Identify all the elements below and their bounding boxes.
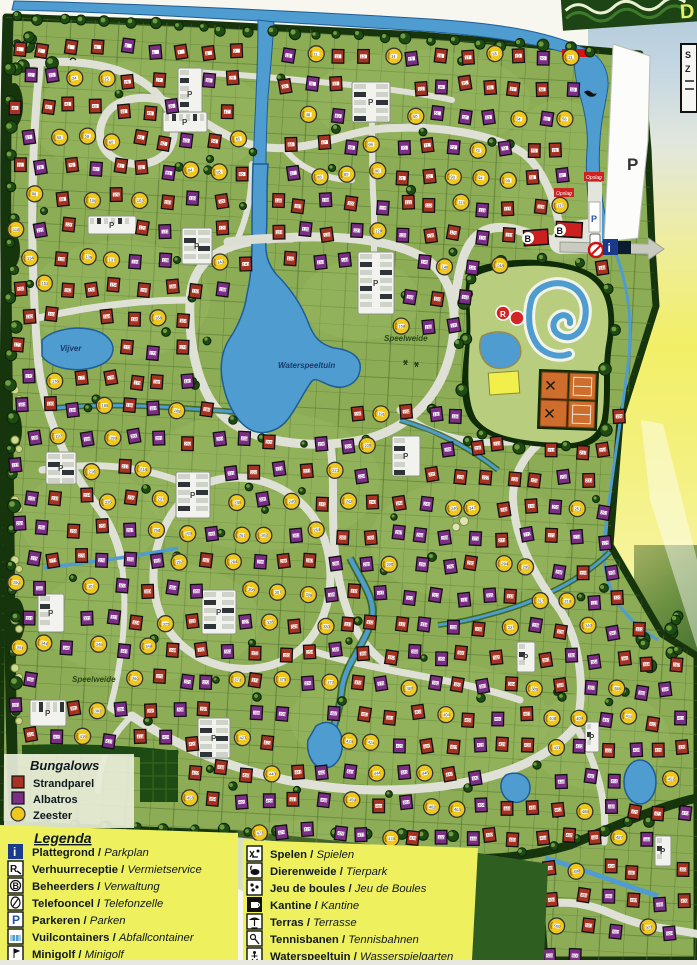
- svg-text:404: 404: [443, 712, 451, 717]
- svg-text:442: 442: [318, 770, 326, 776]
- svg-text:171: 171: [14, 342, 22, 348]
- svg-text:453: 453: [187, 795, 195, 800]
- svg-text:Albatros: Albatros: [33, 794, 78, 806]
- svg-text:R: R: [10, 864, 18, 875]
- svg-text:477: 477: [358, 832, 366, 837]
- svg-text:106: 106: [276, 198, 284, 203]
- svg-text:112: 112: [426, 203, 433, 208]
- svg-text:Parkeren / Parken: Parkeren / Parken: [32, 915, 126, 927]
- svg-text:456: 456: [266, 798, 273, 803]
- svg-text:504: 504: [666, 931, 674, 937]
- svg-text:205: 205: [266, 439, 274, 444]
- svg-text:451: 451: [611, 779, 619, 784]
- svg-text:235: 235: [105, 499, 113, 505]
- svg-text:95: 95: [506, 178, 511, 183]
- svg-text:122: 122: [162, 229, 170, 234]
- svg-text:461: 461: [403, 799, 411, 805]
- svg-text:Vijver: Vijver: [60, 344, 82, 353]
- svg-text:206: 206: [318, 441, 326, 447]
- svg-text:234: 234: [84, 492, 92, 497]
- svg-text:416: 416: [80, 734, 88, 740]
- svg-text:279: 279: [99, 558, 107, 563]
- svg-text:427: 427: [450, 744, 458, 750]
- svg-text:231: 231: [586, 478, 594, 483]
- svg-text:405: 405: [465, 718, 473, 723]
- svg-text:285: 285: [257, 559, 265, 565]
- svg-text:466: 466: [529, 805, 537, 810]
- svg-text:103: 103: [165, 200, 173, 206]
- svg-text:349: 349: [169, 647, 177, 653]
- svg-text:320: 320: [614, 595, 622, 600]
- svg-text:376: 376: [305, 680, 313, 686]
- svg-text:144: 144: [342, 257, 350, 263]
- svg-text:290: 290: [386, 562, 394, 567]
- svg-text:167: 167: [180, 318, 188, 324]
- svg-text:197: 197: [55, 433, 63, 439]
- svg-text:384: 384: [508, 681, 516, 686]
- svg-text:151: 151: [41, 281, 49, 287]
- svg-text:177: 177: [78, 375, 86, 381]
- svg-text:237: 237: [157, 496, 165, 501]
- svg-text:406: 406: [495, 717, 503, 722]
- svg-text:242: 242: [346, 499, 354, 505]
- svg-text:370: 370: [156, 674, 164, 679]
- svg-text:Minigolf / Minigolf: Minigolf / Minigolf: [32, 949, 126, 960]
- svg-text:Verhuurreceptie / Vermietservi: Verhuurreceptie / Vermietservice: [32, 864, 202, 876]
- svg-text:190: 190: [355, 411, 363, 417]
- svg-text:373: 373: [234, 677, 242, 683]
- svg-text:253: 253: [17, 521, 25, 526]
- svg-text:305: 305: [193, 589, 201, 594]
- svg-text:174: 174: [180, 345, 188, 350]
- svg-text:502: 502: [612, 929, 620, 935]
- svg-text:439: 439: [243, 773, 251, 779]
- svg-text:400: 400: [331, 711, 339, 717]
- svg-text:118: 118: [13, 227, 20, 232]
- svg-text:302: 302: [119, 583, 127, 589]
- svg-text:B: B: [557, 226, 564, 236]
- svg-text:340: 340: [585, 623, 593, 629]
- svg-text:Opslag: Opslag: [556, 191, 572, 197]
- svg-text:435: 435: [655, 748, 663, 753]
- svg-text:P: P: [58, 464, 64, 473]
- svg-text:P: P: [627, 155, 638, 174]
- svg-text:463: 463: [454, 807, 462, 813]
- svg-text:433: 433: [605, 748, 613, 753]
- svg-text:319: 319: [591, 600, 599, 606]
- svg-text:213: 213: [580, 450, 588, 456]
- svg-text:484: 484: [540, 835, 548, 841]
- svg-text:399: 399: [279, 711, 287, 717]
- svg-text:337: 337: [507, 624, 515, 630]
- svg-text:Strandparel: Strandparel: [33, 778, 94, 790]
- svg-text:274: 274: [574, 534, 582, 540]
- svg-text:425: 425: [396, 743, 404, 748]
- svg-text:329: 329: [291, 624, 299, 630]
- svg-text:485: 485: [566, 832, 574, 838]
- svg-text:348: 348: [145, 643, 153, 649]
- svg-text:Waterspeeltuin / Wasserspielga: Waterspeeltuin / Wasserspielgarten: [270, 951, 453, 960]
- svg-text:408: 408: [549, 716, 557, 721]
- svg-text:152: 152: [65, 288, 73, 294]
- svg-text:366: 366: [643, 662, 651, 667]
- svg-text:353: 353: [283, 653, 291, 658]
- svg-text:B: B: [13, 881, 20, 891]
- svg-text:266: 266: [368, 535, 376, 541]
- svg-text:P: P: [660, 847, 666, 856]
- svg-text:407: 407: [524, 711, 532, 716]
- svg-text:480: 480: [438, 835, 445, 840]
- svg-text:140: 140: [217, 259, 225, 265]
- svg-text:483: 483: [509, 837, 517, 842]
- svg-text:254: 254: [39, 525, 47, 531]
- svg-text:330: 330: [323, 624, 331, 630]
- svg-text:Terras / Terrasse: Terras / Terrasse: [270, 917, 357, 929]
- svg-text:280: 280: [127, 557, 135, 562]
- svg-text:345: 345: [63, 645, 71, 650]
- svg-text:356: 356: [360, 651, 368, 657]
- svg-text:P: P: [368, 98, 374, 107]
- svg-text:181: 181: [184, 378, 192, 384]
- svg-text:150: 150: [18, 286, 26, 292]
- svg-text:307: 307: [275, 589, 283, 595]
- svg-text:P: P: [109, 221, 115, 230]
- svg-text:321: 321: [26, 616, 34, 621]
- svg-text:13: 13: [361, 54, 366, 59]
- svg-text:452: 452: [668, 776, 676, 781]
- svg-text:397: 397: [200, 706, 208, 711]
- svg-text:257: 257: [127, 528, 135, 533]
- svg-text:354: 354: [306, 649, 314, 654]
- svg-text:316: 316: [507, 594, 515, 599]
- svg-text:i: i: [608, 241, 611, 255]
- svg-text:488: 488: [644, 837, 651, 842]
- svg-text:342: 342: [636, 627, 644, 632]
- svg-text:P: P: [589, 733, 595, 742]
- svg-text:460: 460: [376, 804, 383, 809]
- svg-text:129: 129: [400, 233, 408, 238]
- svg-text:227: 227: [482, 475, 490, 481]
- svg-text:318: 318: [564, 599, 571, 604]
- svg-text:162: 162: [26, 314, 34, 320]
- svg-text:347: 347: [121, 648, 129, 654]
- svg-text:491: 491: [608, 863, 616, 868]
- svg-text:P: P: [373, 279, 379, 288]
- svg-text:387: 387: [588, 685, 596, 691]
- svg-text:P: P: [194, 242, 200, 251]
- svg-text:i: i: [13, 845, 16, 859]
- svg-text:156: 156: [170, 284, 178, 290]
- svg-text:176: 176: [52, 379, 60, 384]
- svg-text:441: 441: [295, 769, 303, 775]
- svg-text:436: 436: [679, 744, 687, 750]
- svg-text:493: 493: [680, 867, 688, 872]
- svg-text:352: 352: [252, 651, 260, 656]
- svg-text:310: 310: [351, 588, 359, 594]
- svg-text:165: 165: [131, 317, 139, 322]
- svg-text:Opslag: Opslag: [586, 175, 602, 181]
- svg-text:398: 398: [253, 710, 261, 715]
- svg-text:413: 413: [678, 716, 686, 721]
- svg-text:141: 141: [243, 261, 251, 266]
- svg-text:183: 183: [47, 401, 55, 406]
- svg-text:250: 250: [552, 504, 560, 510]
- svg-text:114: 114: [479, 208, 486, 213]
- svg-text:110: 110: [380, 205, 387, 210]
- svg-text:Speelweide: Speelweide: [384, 334, 428, 343]
- svg-text:297: 297: [580, 570, 587, 575]
- svg-text:275: 275: [602, 540, 610, 546]
- svg-text:365: 365: [622, 655, 630, 661]
- svg-text:P: P: [216, 608, 222, 617]
- svg-text:294: 294: [501, 561, 509, 566]
- svg-text:249: 249: [528, 503, 536, 509]
- svg-text:359: 359: [439, 656, 447, 661]
- svg-text:146: 146: [442, 264, 450, 269]
- svg-text:505: 505: [546, 953, 554, 958]
- svg-text:311: 311: [377, 590, 384, 595]
- svg-text:204: 204: [241, 436, 249, 441]
- svg-text:428: 428: [477, 742, 485, 747]
- svg-text:Tennisbanen / Tennisbahnen: Tennisbanen / Tennisbahnen: [270, 934, 419, 946]
- svg-text:175: 175: [26, 373, 34, 378]
- svg-text:494: 494: [548, 897, 556, 903]
- svg-text:270: 270: [472, 536, 480, 541]
- svg-text:Beheerders / Verwaltung: Beheerders / Verwaltung: [32, 881, 160, 893]
- svg-text:315: 315: [487, 593, 495, 599]
- svg-text:217: 217: [122, 464, 130, 469]
- svg-text:455: 455: [239, 799, 247, 805]
- svg-text:468: 468: [582, 809, 590, 814]
- svg-text:Speelweide: Speelweide: [72, 675, 116, 684]
- svg-text:P: P: [211, 734, 217, 743]
- svg-text:325: 325: [163, 621, 170, 626]
- svg-text:108: 108: [322, 197, 330, 202]
- svg-text:P: P: [182, 118, 188, 127]
- svg-text:222: 222: [304, 468, 312, 474]
- svg-text:391: 391: [12, 702, 20, 707]
- svg-text:496: 496: [606, 894, 614, 899]
- svg-text:139: 139: [162, 258, 170, 263]
- svg-text:P: P: [403, 452, 409, 461]
- svg-text:478: 478: [388, 836, 395, 841]
- svg-text:481: 481: [470, 836, 477, 841]
- svg-text:Telefooncel / Telefonzelle: Telefooncel / Telefonzelle: [32, 898, 163, 910]
- svg-text:138: 138: [132, 259, 140, 265]
- svg-text:454: 454: [209, 796, 217, 802]
- svg-text:471: 471: [655, 811, 663, 817]
- svg-text:361: 361: [493, 655, 501, 661]
- svg-text:192: 192: [403, 409, 411, 415]
- svg-text:185: 185: [101, 403, 109, 409]
- svg-text:Dierenweide / Tierpark: Dierenweide / Tierpark: [270, 866, 389, 878]
- svg-text:437: 437: [192, 770, 200, 776]
- svg-text:P: P: [48, 609, 54, 618]
- svg-text:Spelen / Spielen: Spelen / Spielen: [270, 849, 354, 861]
- svg-text:Z: Z: [685, 64, 691, 74]
- svg-text:430: 430: [525, 743, 533, 748]
- svg-text:492: 492: [628, 870, 636, 875]
- svg-text:P: P: [12, 913, 20, 927]
- svg-text:Plattegrond / Parkplan: Plattegrond / Parkplan: [32, 847, 149, 859]
- svg-text:86: 86: [239, 172, 244, 177]
- svg-text:137: 137: [109, 257, 117, 262]
- svg-text:255: 255: [70, 529, 78, 534]
- svg-text:Legenda: Legenda: [34, 830, 92, 846]
- svg-text:Waterspeeltuin: Waterspeeltuin: [278, 361, 335, 370]
- svg-text:469: 469: [608, 804, 616, 809]
- svg-text:331: 331: [345, 622, 353, 628]
- svg-text:Vuilcontainers / Abfallcontain: Vuilcontainers / Abfallcontainer: [32, 932, 195, 944]
- svg-text:396: 396: [177, 707, 185, 712]
- svg-text:Kantine / Kantine: Kantine / Kantine: [270, 900, 359, 912]
- svg-text:199: 199: [110, 435, 118, 440]
- svg-text:256: 256: [99, 523, 107, 528]
- svg-text:363: 363: [568, 653, 576, 658]
- svg-text:303: 303: [145, 589, 153, 594]
- svg-text:300: 300: [37, 586, 44, 591]
- svg-text:475: 475: [304, 827, 312, 832]
- svg-text:215: 215: [12, 462, 20, 468]
- svg-text:P: P: [45, 709, 51, 718]
- svg-text:168: 168: [398, 324, 405, 329]
- svg-text:335: 335: [450, 625, 458, 630]
- svg-text:136: 136: [85, 254, 93, 260]
- svg-text:134: 134: [27, 255, 35, 261]
- svg-text:346: 346: [96, 642, 104, 647]
- svg-text:R: R: [500, 310, 506, 319]
- svg-text:464: 464: [478, 802, 486, 807]
- svg-text:487: 487: [616, 835, 624, 841]
- svg-text:411: 411: [625, 713, 633, 719]
- svg-text:367: 367: [673, 662, 681, 668]
- svg-text:154: 154: [110, 282, 118, 288]
- svg-text:102: 102: [137, 198, 145, 204]
- svg-text:172: 172: [124, 344, 132, 350]
- svg-text:201: 201: [156, 436, 164, 441]
- svg-text:B: B: [525, 234, 532, 244]
- svg-text:273: 273: [548, 533, 556, 538]
- svg-text:322: 322: [84, 616, 92, 621]
- svg-text:Bungalows: Bungalows: [30, 758, 99, 773]
- svg-text:P: P: [187, 90, 193, 99]
- svg-text:459: 459: [349, 797, 357, 802]
- svg-text:317: 317: [537, 598, 545, 603]
- svg-text:486: 486: [592, 835, 600, 841]
- svg-text:258: 258: [154, 528, 162, 533]
- svg-text:Jeu de boules / Jeu de Boules: Jeu de boules / Jeu de Boules: [270, 883, 427, 895]
- svg-text:291: 291: [419, 562, 427, 568]
- svg-text:Zeester: Zeester: [33, 810, 73, 822]
- svg-text:223: 223: [332, 468, 340, 474]
- svg-text:263: 263: [293, 533, 301, 539]
- svg-text:429: 429: [499, 742, 507, 747]
- svg-text:P: P: [523, 653, 529, 662]
- svg-text:182: 182: [19, 402, 27, 407]
- svg-text:123: 123: [219, 225, 227, 230]
- svg-text:287: 287: [306, 558, 314, 564]
- svg-text:124: 124: [276, 230, 284, 235]
- svg-text:434: 434: [633, 747, 641, 752]
- svg-text:241: 241: [319, 502, 327, 507]
- svg-text:497: 497: [630, 897, 638, 903]
- svg-text:465: 465: [504, 806, 511, 811]
- svg-text:284: 284: [230, 559, 238, 565]
- svg-text:D: D: [679, 1, 695, 24]
- svg-text:377: 377: [327, 680, 335, 686]
- svg-text:372: 372: [203, 680, 211, 685]
- svg-text:278: 278: [79, 553, 87, 558]
- svg-text:431: 431: [553, 745, 561, 751]
- svg-text:418: 418: [137, 734, 145, 739]
- svg-text:243: 243: [369, 499, 377, 504]
- svg-text:457: 457: [290, 797, 297, 802]
- svg-text:194: 194: [452, 414, 460, 419]
- svg-text:289: 289: [363, 561, 371, 567]
- svg-text:P: P: [591, 214, 597, 224]
- svg-text:115: 115: [505, 206, 512, 211]
- svg-text:421: 421: [239, 735, 247, 741]
- svg-text:251: 251: [574, 506, 582, 511]
- svg-text:220: 220: [251, 470, 258, 475]
- svg-text:395: 395: [148, 708, 156, 713]
- svg-text:393: 393: [95, 708, 103, 713]
- svg-text:195: 195: [616, 414, 624, 419]
- svg-text:506: 506: [572, 953, 580, 958]
- svg-text:351: 351: [224, 649, 232, 654]
- svg-text:462: 462: [429, 804, 437, 809]
- svg-text:449: 449: [558, 779, 566, 784]
- svg-text:498: 498: [657, 902, 665, 908]
- svg-text:180: 180: [154, 379, 162, 385]
- svg-text:186: 186: [126, 402, 134, 408]
- svg-text:295: 295: [523, 564, 531, 569]
- svg-text:375: 375: [279, 677, 287, 682]
- svg-text:499: 499: [681, 898, 689, 903]
- svg-text:228: 228: [512, 477, 520, 483]
- svg-text:128: 128: [375, 228, 383, 233]
- svg-text:394: 394: [118, 706, 126, 712]
- svg-text:S: S: [685, 50, 691, 60]
- svg-text:101: 101: [113, 192, 121, 197]
- svg-text:127: 127: [354, 228, 362, 233]
- svg-text:135: 135: [58, 256, 66, 262]
- svg-text:142: 142: [287, 256, 295, 262]
- svg-text:111: 111: [405, 200, 412, 205]
- svg-text:432: 432: [576, 744, 584, 749]
- svg-text:133: 133: [506, 232, 514, 238]
- svg-text:104: 104: [189, 196, 197, 201]
- svg-text:419: 419: [163, 735, 170, 740]
- svg-text:77: 77: [17, 162, 22, 167]
- svg-text:358: 358: [412, 649, 420, 654]
- svg-text:P: P: [190, 491, 196, 500]
- svg-text:202: 202: [184, 441, 192, 446]
- svg-text:271: 271: [499, 538, 507, 543]
- svg-text:173: 173: [150, 350, 158, 356]
- svg-text:166: 166: [155, 315, 163, 320]
- svg-text:445: 445: [401, 769, 409, 775]
- svg-text:212: 212: [548, 448, 555, 453]
- svg-text:265: 265: [340, 535, 348, 540]
- svg-text:473: 473: [256, 830, 264, 836]
- svg-text:440: 440: [269, 771, 277, 776]
- svg-text:415: 415: [54, 734, 62, 739]
- svg-text:187: 187: [150, 406, 158, 411]
- svg-text:216: 216: [89, 469, 97, 474]
